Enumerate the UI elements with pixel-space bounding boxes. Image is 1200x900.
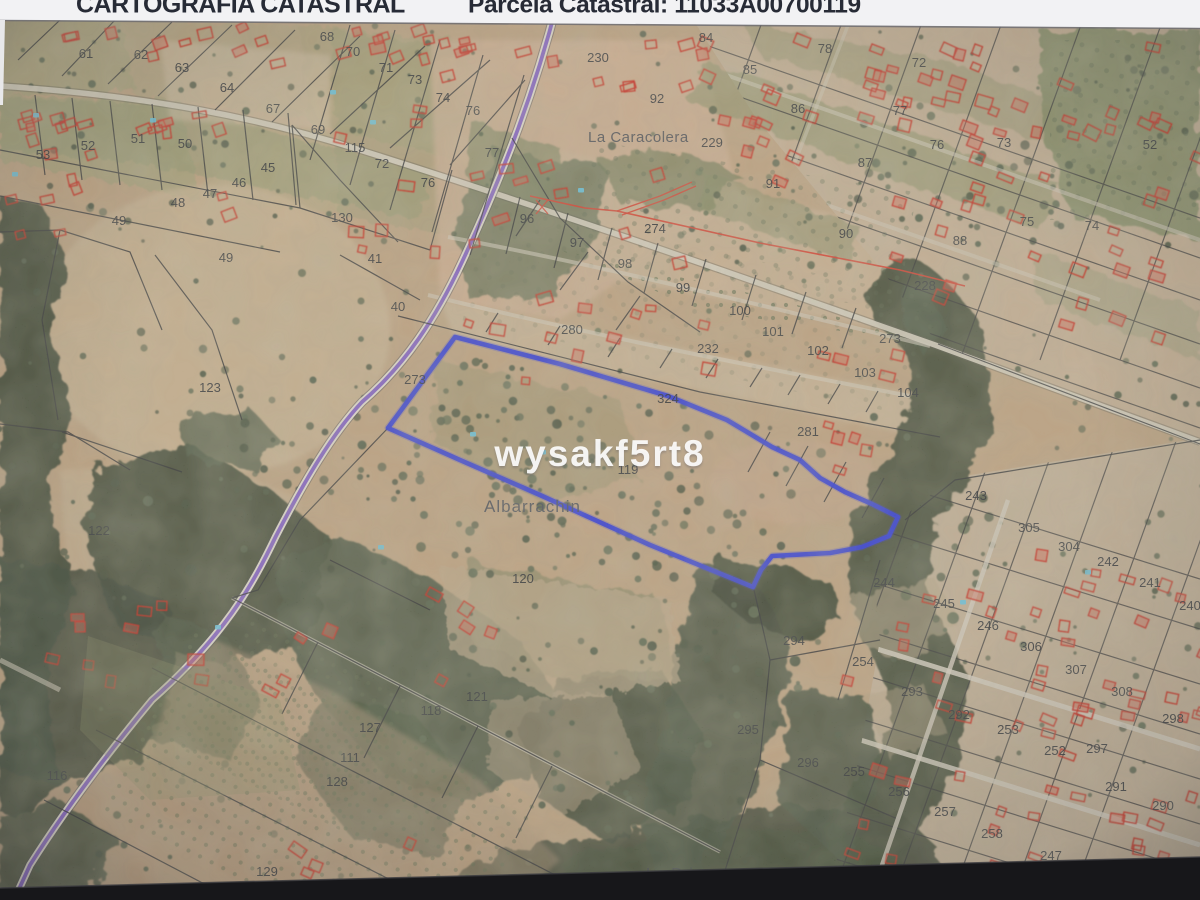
svg-text:CARTOGRAFÍA CATASTRAL: CARTOGRAFÍA CATASTRAL xyxy=(76,0,405,19)
svg-text:Parcela Catastral: 11033A00700: Parcela Catastral: 11033A00700119 xyxy=(468,0,861,19)
